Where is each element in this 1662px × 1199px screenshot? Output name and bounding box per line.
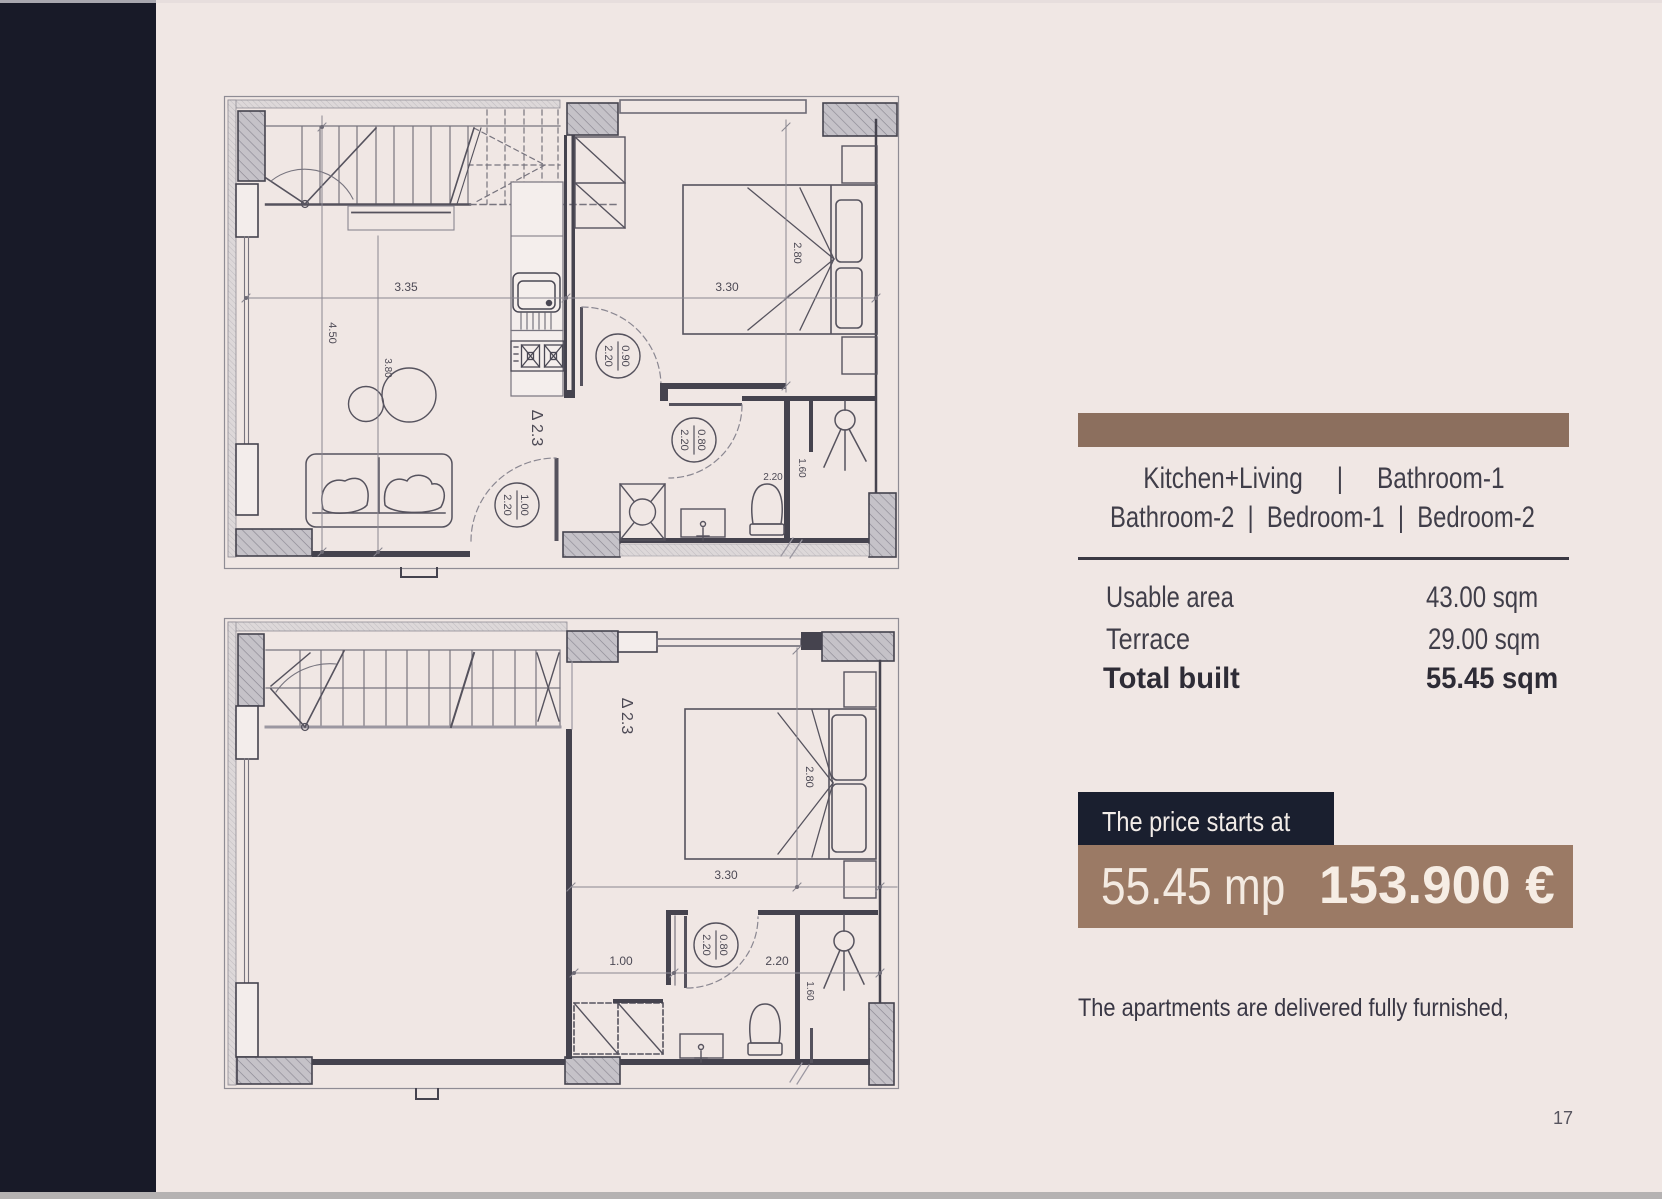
svg-text:1.00: 1.00 (609, 954, 633, 968)
svg-text:0.80: 0.80 (717, 934, 729, 955)
svg-text:3.30: 3.30 (715, 280, 739, 294)
svg-text:0.90: 0.90 (619, 345, 631, 366)
svg-text:1.60: 1.60 (796, 458, 807, 478)
svg-text:4.50: 4.50 (326, 322, 338, 343)
svg-text:2.20: 2.20 (602, 345, 614, 366)
svg-text:2.20: 2.20 (765, 954, 789, 968)
svg-text:3.30: 3.30 (714, 868, 738, 882)
svg-text:Δ 2.3: Δ 2.3 (618, 698, 635, 735)
svg-text:2.20: 2.20 (501, 494, 513, 515)
svg-text:3.35: 3.35 (394, 280, 418, 294)
svg-text:2.20: 2.20 (763, 472, 783, 483)
svg-text:2.80: 2.80 (803, 766, 815, 787)
svg-text:2.80: 2.80 (791, 242, 803, 263)
svg-text:1.00: 1.00 (518, 494, 530, 515)
svg-text:3.80: 3.80 (382, 358, 393, 378)
svg-text:2.20: 2.20 (678, 429, 690, 450)
svg-text:1.60: 1.60 (804, 981, 815, 1001)
svg-text:2.20: 2.20 (700, 934, 712, 955)
svg-text:Δ 2.3: Δ 2.3 (528, 410, 545, 447)
svg-text:0.80: 0.80 (695, 429, 707, 450)
